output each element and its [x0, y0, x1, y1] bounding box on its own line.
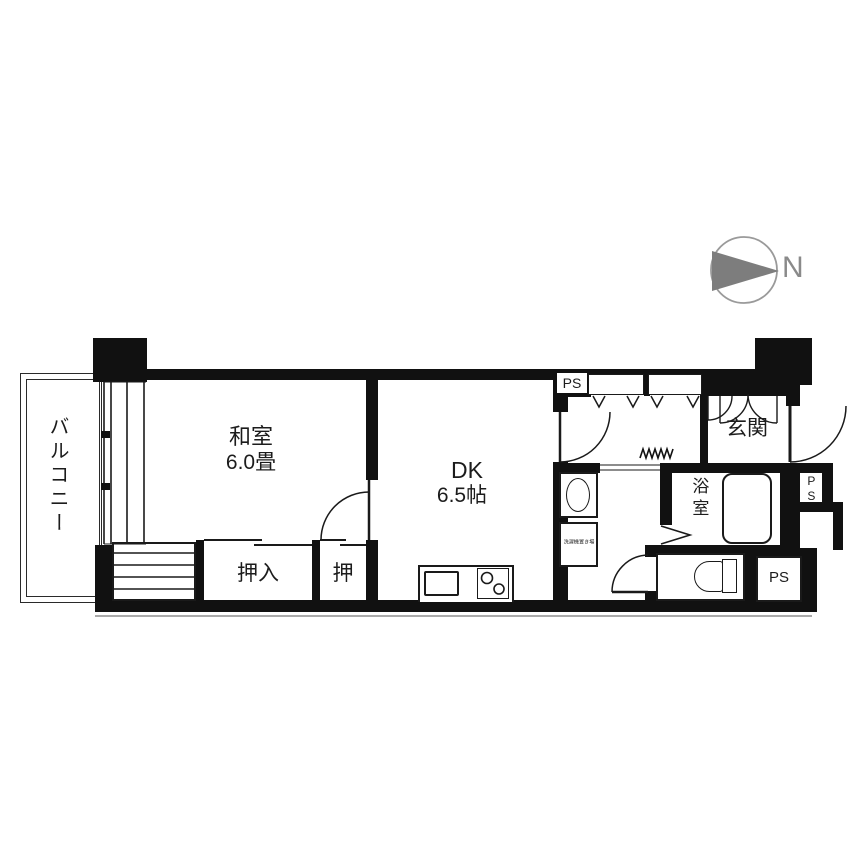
dk-size-label: 6.5帖 [437, 483, 487, 508]
door-entrance [790, 406, 846, 462]
laundry-label: 洗濯機置き場 [564, 540, 595, 546]
washbasin-bowl [566, 478, 590, 512]
wall-hall-entrance [700, 393, 708, 463]
hanging-cupboard-left [588, 374, 644, 395]
wall-dk-hall-upper [553, 393, 568, 412]
door-washitsu [321, 480, 369, 540]
north-label: N [782, 250, 804, 286]
cupboard-hook-marks [593, 396, 699, 407]
floorplan-page: { "compass": { "north": "N" }, "rooms": … [0, 0, 850, 850]
ps-side-label: PS [804, 474, 818, 504]
wall-outer-right-bar [833, 502, 843, 550]
sliding-window [101, 382, 146, 544]
bath-folding-door [661, 526, 690, 544]
wall-right-above-door [786, 385, 800, 406]
bathtub [722, 473, 772, 544]
plan-line-overlay [0, 0, 850, 850]
toilet-tank [722, 559, 737, 593]
compass [711, 237, 779, 303]
washitsu-label: 和室 [229, 424, 273, 450]
kitchen-sink [424, 571, 459, 596]
wall-top [147, 369, 562, 380]
bathroom-label: 浴室 [688, 477, 708, 521]
wall-bottom-left-block [95, 545, 112, 612]
closet-sliding-doors [204, 540, 366, 545]
storage-hatched [112, 542, 196, 601]
oshi-label: 押 [333, 561, 354, 586]
wall-closet-post-a [196, 540, 204, 602]
wall-entrance-bottom [708, 463, 833, 473]
door-hall [560, 412, 610, 462]
door-washitsu-arc [321, 492, 369, 540]
entrance-step-hatch [640, 449, 673, 458]
washitsu-size-label: 6.0畳 [226, 450, 276, 475]
oshiire-label: 押入 [237, 561, 279, 586]
compass-circle-icon [711, 237, 777, 303]
door-toilet [612, 555, 648, 592]
wall-toilet-left-upper [645, 545, 656, 557]
dk-label: DK [451, 457, 483, 485]
compass-needle-icon [712, 251, 779, 291]
wall-bath-left [660, 470, 672, 525]
wall-divider-upper [366, 380, 378, 480]
wall-column-top-right [755, 338, 812, 385]
wall-ps-room-right [802, 548, 817, 603]
toilet-bowl [694, 561, 723, 592]
hanging-cupboard-right [648, 374, 702, 395]
balcony-label: バルコニー [45, 416, 69, 536]
wall-closet-post-b [312, 540, 320, 602]
wall-column-top-left [93, 338, 147, 382]
threshold-lines [600, 465, 660, 470]
entrance-label: 玄関 [726, 416, 768, 441]
ps-top-label: PS [563, 375, 582, 392]
kitchen-stove [477, 568, 509, 599]
ps-bottom-label: PS [769, 569, 789, 587]
